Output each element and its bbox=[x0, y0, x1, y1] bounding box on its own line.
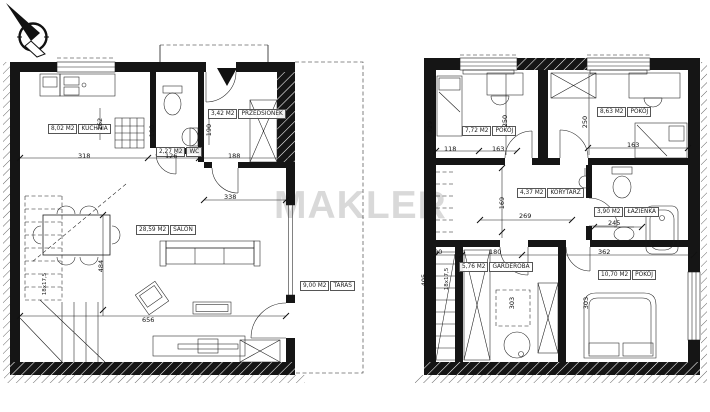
room-label-taras: 9,00 M2 TARAS bbox=[300, 281, 355, 291]
dim-484: 484 bbox=[97, 253, 105, 279]
dim-269: 269 bbox=[519, 212, 531, 220]
dim-169: 169 bbox=[498, 190, 506, 216]
dim-163-b: 163 bbox=[627, 141, 639, 149]
sofa-set bbox=[135, 241, 260, 315]
room-label-korytarz: 4,37 M2 KORYTARZ bbox=[517, 188, 584, 198]
room-label-salon: 28,59 M2 SALON bbox=[136, 225, 196, 235]
room-name: GARDEROBA bbox=[489, 262, 532, 272]
north-arrow-icon bbox=[6, 3, 49, 57]
room-area: 3,90 M2 bbox=[594, 207, 623, 217]
salon-wardrobe bbox=[240, 340, 280, 362]
room-name: POKÓJ bbox=[627, 107, 651, 117]
dim-126: 126 bbox=[165, 152, 177, 160]
room-area: 5,76 M2 bbox=[459, 262, 488, 272]
dim-656: 656 bbox=[142, 316, 154, 324]
room-name: KORYTARZ bbox=[547, 188, 583, 198]
ground-floor-drawing bbox=[3, 45, 363, 383]
dim-303-a: 303 bbox=[508, 290, 516, 316]
dim-250-a: 250 bbox=[501, 108, 509, 134]
dim-stairs-ground: 18x17,5 bbox=[42, 267, 48, 301]
upper-floor-drawing bbox=[415, 55, 707, 383]
room-label-pokoj-2: 8,63 M2 POKÓJ bbox=[597, 107, 651, 117]
room-area: 28,59 M2 bbox=[136, 225, 169, 235]
dim-362: 362 bbox=[598, 248, 610, 256]
floor-plan-drawing bbox=[0, 0, 710, 412]
desk-room2 bbox=[629, 73, 680, 107]
dim-190-wc: 190 bbox=[148, 118, 156, 144]
room-label-lazienka: 3,90 M2 ŁAZIENKA bbox=[594, 207, 659, 217]
dim-90: 90 bbox=[434, 248, 442, 256]
dim-163-a: 163 bbox=[492, 145, 504, 153]
upper-dim-lines bbox=[432, 74, 697, 258]
room-label-wc: 2,27 M2 WC bbox=[156, 147, 202, 157]
room-name: ŁAZIENKA bbox=[624, 207, 659, 217]
room-name: KUCHNIA bbox=[78, 124, 110, 134]
wc-fixtures bbox=[163, 86, 198, 146]
desk-room1 bbox=[487, 73, 523, 105]
dim-180: 180 bbox=[489, 248, 501, 256]
room-area: 9,00 M2 bbox=[300, 281, 329, 291]
room-area: 7,72 M2 bbox=[462, 126, 491, 136]
room-label-przedsionek: 3,42 M2 PRZEDSIONEK bbox=[208, 109, 286, 119]
room-area: 8,63 M2 bbox=[597, 107, 626, 117]
tv-stand bbox=[153, 336, 245, 356]
room-name: PRZEDSIONEK bbox=[238, 109, 285, 119]
room-label-garderoba: 5,76 M2 GARDEROBA bbox=[459, 262, 533, 272]
dim-303-b: 303 bbox=[582, 290, 590, 316]
floor-plan-page: MAKLER bbox=[0, 0, 710, 412]
room-name: TARAS bbox=[330, 281, 355, 291]
bed-room3 bbox=[584, 293, 656, 358]
room-area: 10,70 M2 bbox=[598, 270, 631, 280]
dim-118: 118 bbox=[444, 145, 456, 153]
dim-250-b: 250 bbox=[581, 109, 589, 135]
room-name: POKÓJ bbox=[632, 270, 656, 280]
dim-245: 245 bbox=[608, 219, 620, 227]
room-name: WC bbox=[186, 147, 202, 157]
room-label-pokoj-3: 10,70 M2 POKÓJ bbox=[598, 270, 656, 280]
stairs-ground bbox=[20, 196, 105, 362]
dim-162: 162 bbox=[96, 111, 104, 137]
dim-190-hall: 190 bbox=[205, 117, 213, 143]
dim-329: 329 bbox=[426, 114, 434, 140]
dim-stairs-upper: 18x17,5 bbox=[444, 262, 450, 296]
room-name: SALON bbox=[170, 225, 196, 235]
room-area: 8,02 M2 bbox=[48, 124, 77, 134]
bed-room2 bbox=[635, 123, 687, 158]
dim-318: 318 bbox=[78, 152, 90, 160]
dim-188: 188 bbox=[228, 152, 240, 160]
room-area: 4,37 M2 bbox=[517, 188, 546, 198]
kitchen-fixtures bbox=[40, 74, 144, 148]
dim-338: 338 bbox=[224, 193, 236, 201]
dim-405: 405 bbox=[420, 267, 428, 293]
bed-room1 bbox=[437, 76, 462, 136]
